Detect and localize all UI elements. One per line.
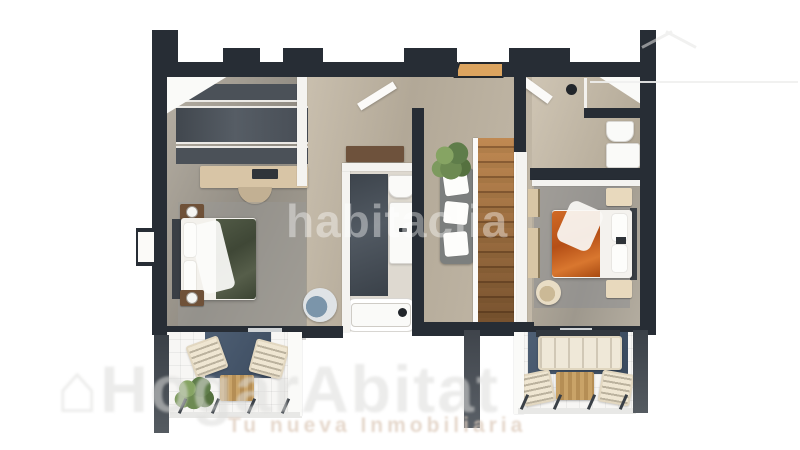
stairwell-north-wall [514, 76, 526, 152]
bathtub-faucet [398, 308, 407, 317]
daybed [538, 336, 622, 370]
bathroom-partition-wall [584, 108, 641, 118]
sink-ensuite [606, 143, 640, 168]
staircase-wood [478, 138, 514, 332]
terrace-left-side-wall [288, 332, 302, 416]
window-niche [138, 232, 154, 262]
watermark-line [590, 81, 798, 83]
hall-console [346, 146, 404, 162]
exterior-wall-left [152, 62, 167, 335]
patio-chair [597, 369, 634, 406]
chimney-block [223, 48, 260, 64]
wardrobe [528, 189, 540, 217]
patio-table [220, 375, 254, 401]
right-bedroom-wall-face [532, 180, 641, 186]
laptop [252, 169, 278, 179]
closet-row [176, 106, 308, 144]
watermark-house-icon: ⌂ [56, 349, 100, 427]
sink-drain [399, 228, 407, 232]
hall-east-wall [412, 108, 424, 332]
roof-line-right [665, 30, 696, 49]
nightstand-right [606, 280, 632, 298]
skylight-wood [453, 62, 508, 78]
lounge-chair-round [303, 288, 337, 322]
potted-plant-indoor [430, 140, 472, 184]
stairwell-east-wall [517, 152, 527, 332]
toilet-ensuite [606, 121, 634, 142]
nightstand-right [606, 188, 632, 206]
sofa-cushion [443, 231, 469, 257]
chimney-block [509, 48, 570, 64]
exterior-wall-right [640, 30, 656, 335]
bathroom-west-wall [342, 163, 350, 332]
bathroom-dark-tiles [350, 174, 388, 296]
exterior-wall-top2 [502, 62, 645, 77]
pillow [184, 223, 196, 257]
chimney-block [283, 48, 323, 64]
bathroom-north-wall [342, 163, 420, 171]
pillow [612, 245, 627, 272]
divider-wall-below-stairs [464, 330, 480, 428]
wardrobe [528, 228, 540, 278]
exterior-wall-top [152, 62, 458, 77]
lounge-chair-round-right [536, 280, 561, 305]
exterior-wall-left-terrace [154, 335, 169, 433]
railing-band [518, 408, 634, 414]
interior-wall [297, 76, 307, 186]
right-bedroom-north-wall [530, 168, 641, 180]
shower-head [566, 84, 577, 95]
watermark-roof-icon [638, 24, 698, 58]
sofa-cushion [443, 201, 469, 225]
bed-headboard [172, 219, 181, 299]
closet-row [176, 146, 308, 164]
bed-remote-item [616, 237, 626, 244]
floorplan-render: habitaclia ⌂HogarAbitat Tu nueva Inmobil… [0, 0, 800, 450]
chimney-block [404, 48, 457, 64]
toilet [388, 175, 415, 198]
table-lamp [186, 206, 198, 218]
potted-plant-terrace [172, 376, 216, 412]
table-lamp [186, 292, 198, 304]
exterior-wall-right-terrace [633, 330, 648, 413]
